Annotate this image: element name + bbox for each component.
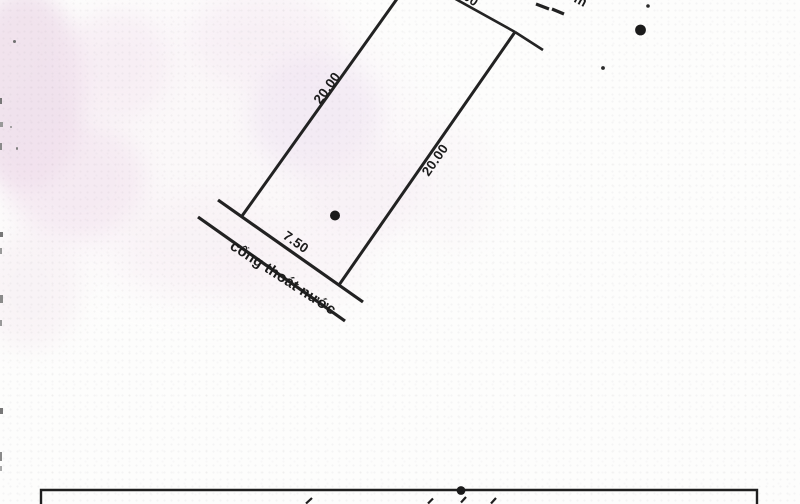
clipped-letter-stroke-4 — [491, 498, 496, 504]
scan-edge-artifact — [0, 320, 2, 326]
frame-top-border — [41, 490, 757, 504]
scan-edge-artifact — [0, 408, 3, 414]
scan-edge-artifact — [0, 232, 3, 237]
clipped-letter-stroke-3 — [461, 497, 466, 503]
scan-edge-artifact — [0, 122, 3, 127]
ink-speck — [10, 126, 12, 128]
dashed-boundary-mark-2 — [552, 9, 564, 14]
scan-edge-artifact — [0, 466, 2, 471]
survey-point-dot-plot — [330, 211, 340, 221]
scan-edge-artifact — [0, 143, 2, 150]
survey-point-dot-right — [635, 25, 646, 36]
small-point-dot-1 — [646, 4, 650, 8]
ink-speck — [16, 147, 18, 150]
scan-edge-artifact — [0, 295, 3, 303]
dashed-boundary-mark-1 — [536, 4, 549, 9]
frame-marker-dot — [457, 486, 466, 495]
clipped-letter-stroke-1 — [306, 498, 312, 504]
scan-edge-artifact — [0, 98, 2, 104]
plot-left-edge-line — [242, 0, 401, 216]
sketch-linework — [0, 0, 800, 504]
scan-edge-artifact — [0, 452, 2, 461]
small-point-dot-2 — [601, 66, 605, 70]
scan-edge-artifact — [0, 248, 2, 254]
clipped-letter-stroke-2 — [428, 499, 433, 504]
plot-top-edge-line — [452, 0, 515, 32]
ink-speck — [13, 40, 16, 43]
scanned-cadastral-sketch: 20.00 20.00 7.50 00 cống thoát nước m — [0, 0, 800, 504]
boundary-extension-line — [515, 32, 543, 50]
